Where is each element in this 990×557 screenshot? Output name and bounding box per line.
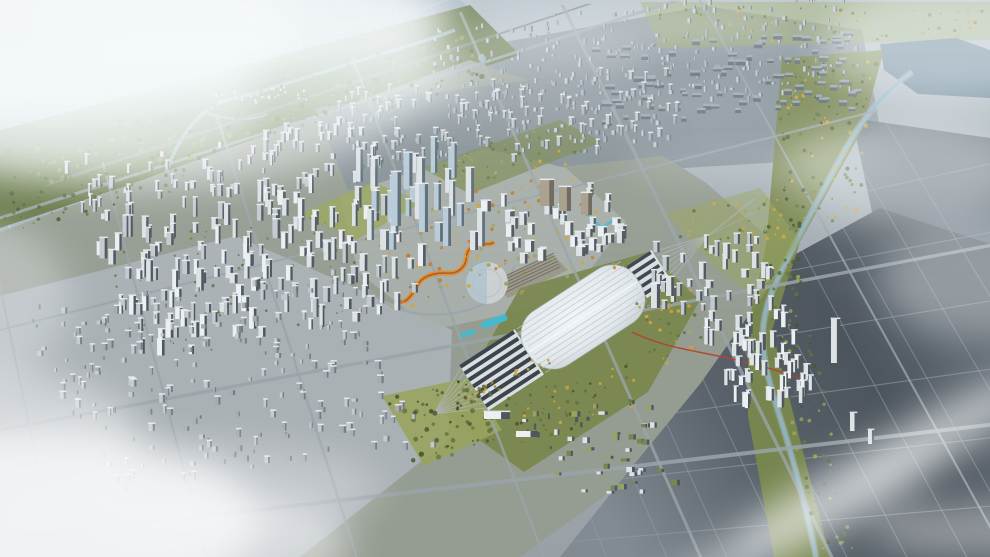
city-masterplan-rendering: Bird's-eye architectural rendering of a …: [0, 0, 990, 557]
atmosphere-overlay: [0, 0, 990, 557]
